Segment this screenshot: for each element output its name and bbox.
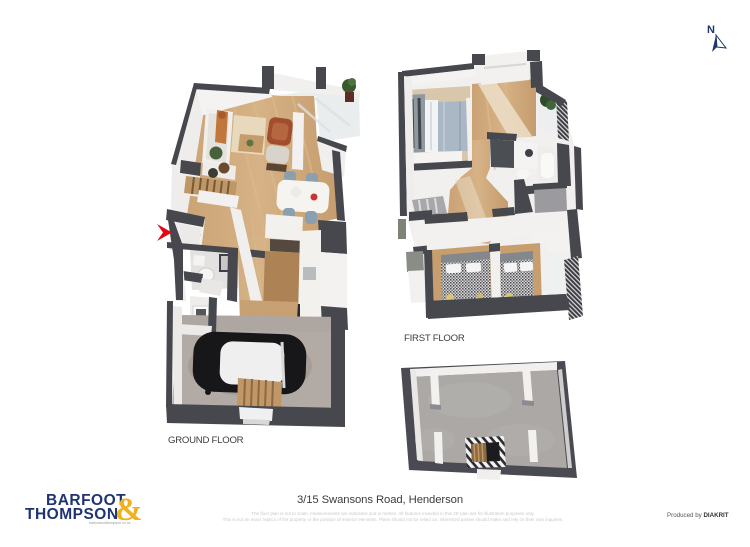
svg-text:N: N xyxy=(707,24,715,36)
svg-text:barfootandthompson.co.nz: barfootandthompson.co.nz xyxy=(89,521,131,525)
svg-text:FIRST FLOOR: FIRST FLOOR xyxy=(404,333,465,344)
svg-text:GROUND FLOOR: GROUND FLOOR xyxy=(168,435,244,446)
svg-text:The floor plan is not to scale: The floor plan is not to scale, measurem… xyxy=(251,511,534,516)
svg-text:3/15 Swansons Road, Henderson: 3/15 Swansons Road, Henderson xyxy=(297,494,463,506)
svg-text:Produced by DIAKRIT: Produced by DIAKRIT xyxy=(667,512,729,519)
svg-text:This is not an exact replica o: This is not an exact replica of the prop… xyxy=(223,517,564,522)
